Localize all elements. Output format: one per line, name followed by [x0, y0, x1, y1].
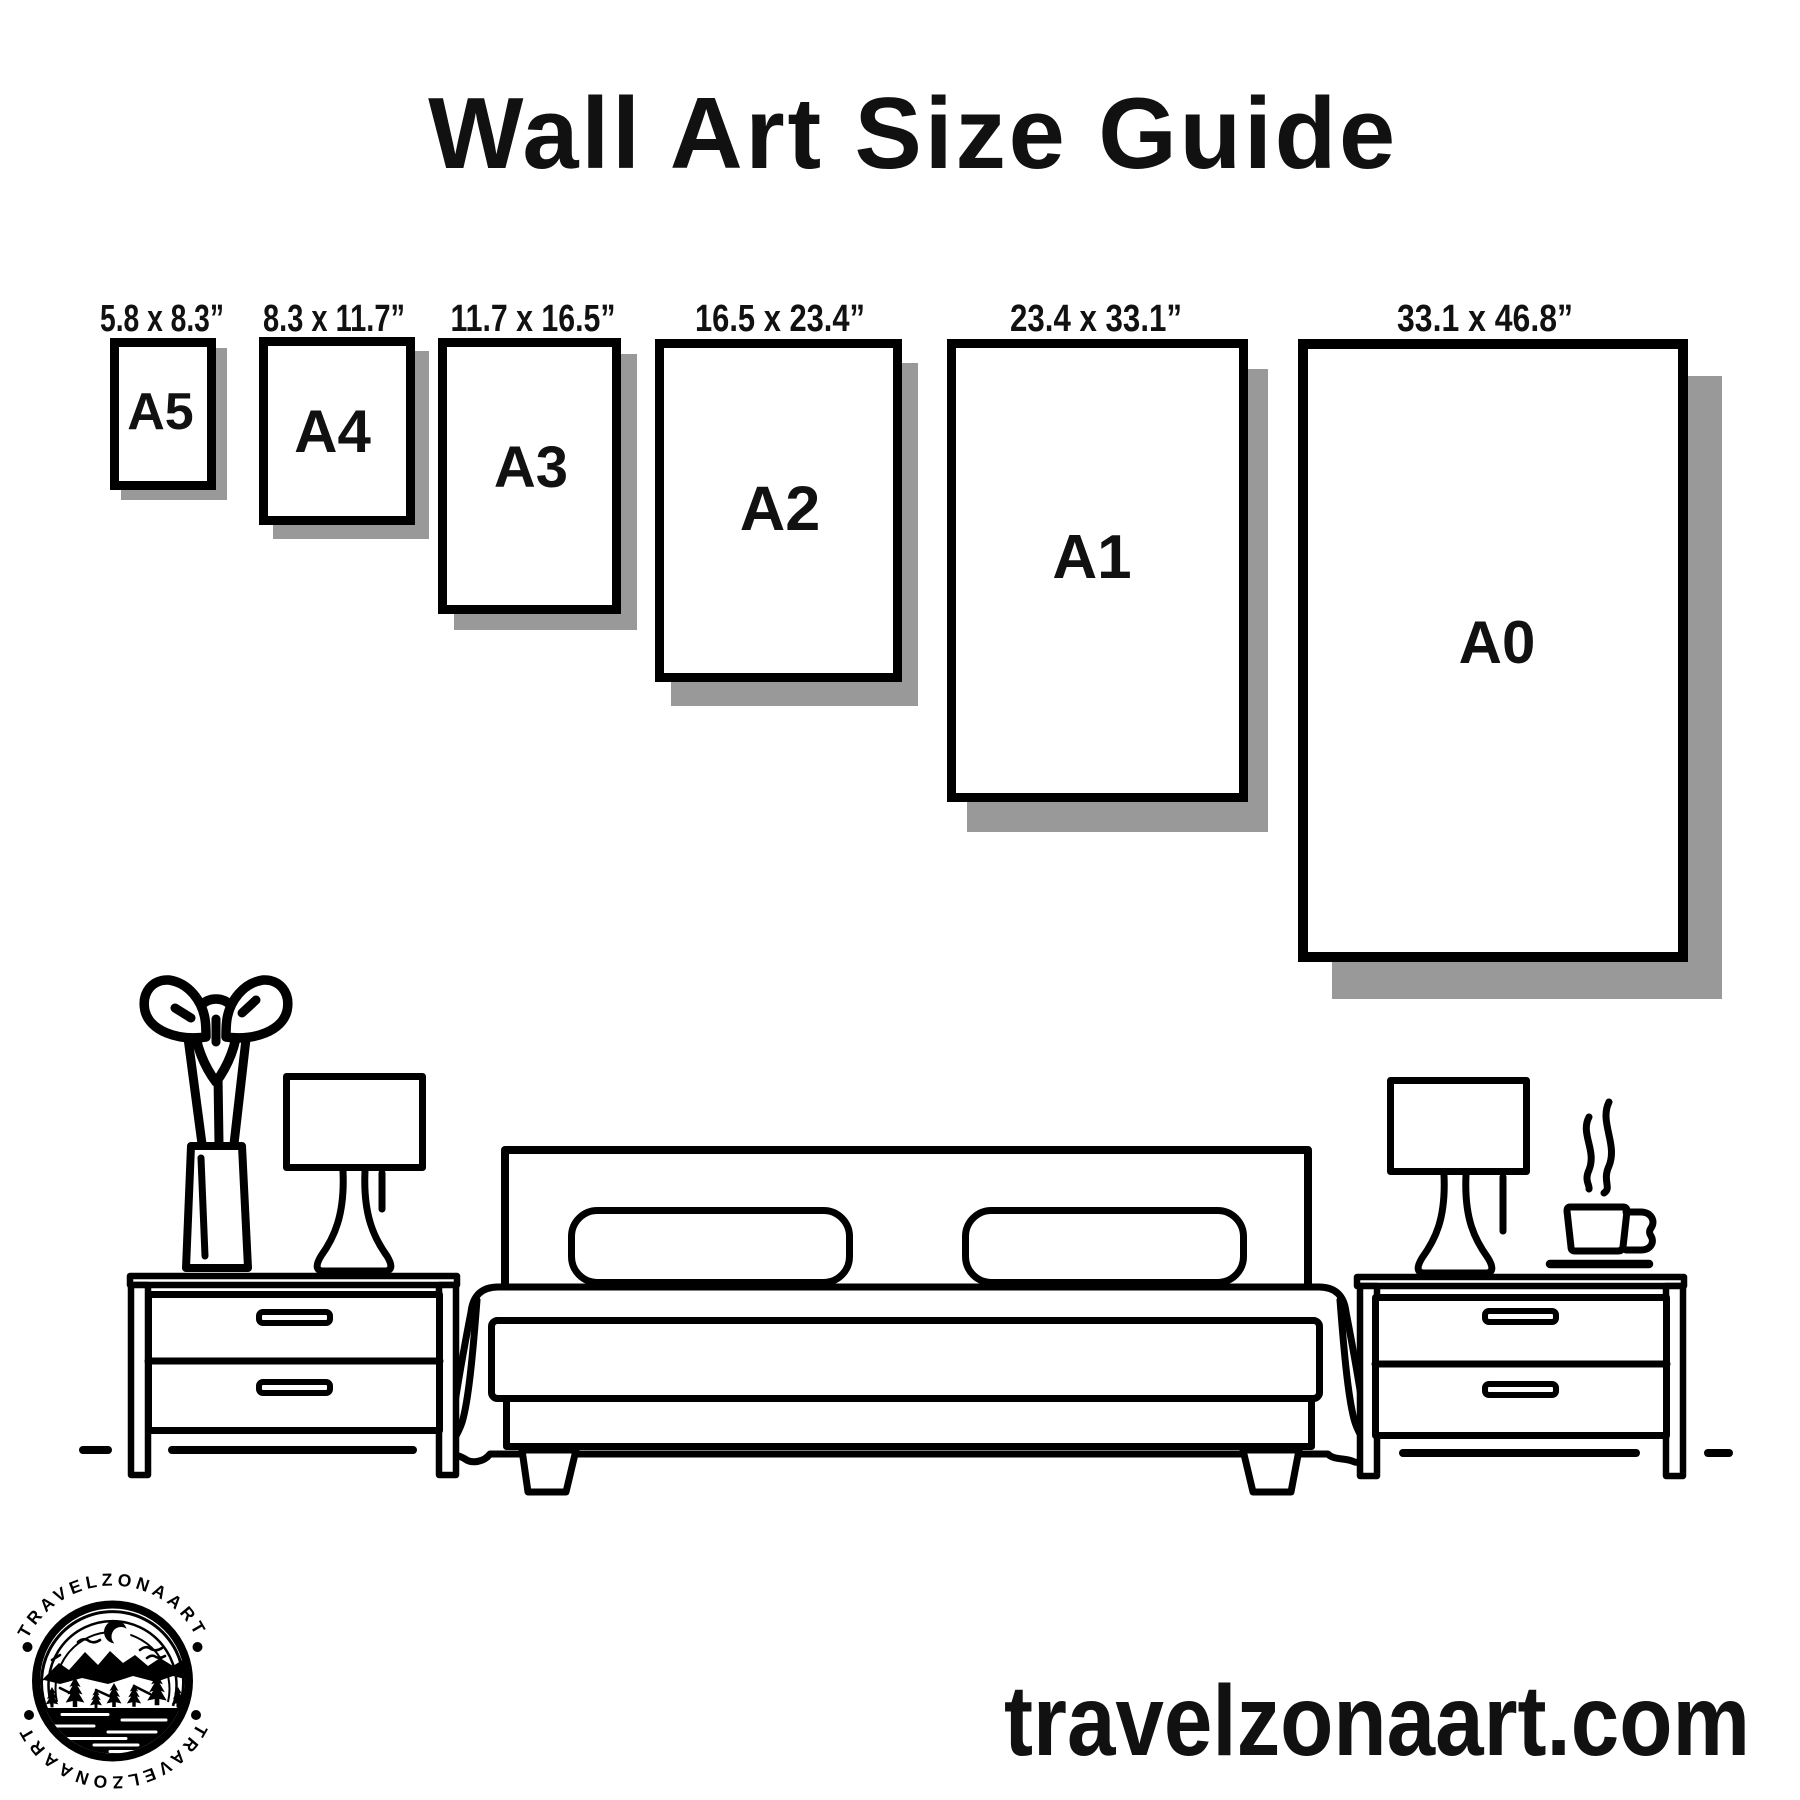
svg-text:A1: A1: [1052, 523, 1131, 592]
svg-text:A4: A4: [294, 398, 371, 465]
svg-text:16.5 x 23.4”: 16.5 x 23.4”: [695, 298, 865, 340]
svg-text:8.3 x 11.7”: 8.3 x 11.7”: [263, 298, 405, 340]
svg-text:A0: A0: [1459, 609, 1536, 676]
svg-text:11.7 x 16.5”: 11.7 x 16.5”: [451, 298, 616, 340]
svg-text:33.1 x 46.8”: 33.1 x 46.8”: [1397, 298, 1573, 340]
svg-text:travelzonaart.com: travelzonaart.com: [1004, 1665, 1750, 1777]
svg-text:A2: A2: [740, 474, 821, 544]
svg-text:A5: A5: [127, 383, 193, 441]
svg-text:5.8 x 8.3”: 5.8 x 8.3”: [100, 298, 224, 340]
svg-text:23.4 x 33.1”: 23.4 x 33.1”: [1010, 298, 1182, 340]
svg-text:A3: A3: [494, 435, 568, 500]
svg-text:Wall Art Size Guide: Wall Art Size Guide: [428, 78, 1398, 190]
